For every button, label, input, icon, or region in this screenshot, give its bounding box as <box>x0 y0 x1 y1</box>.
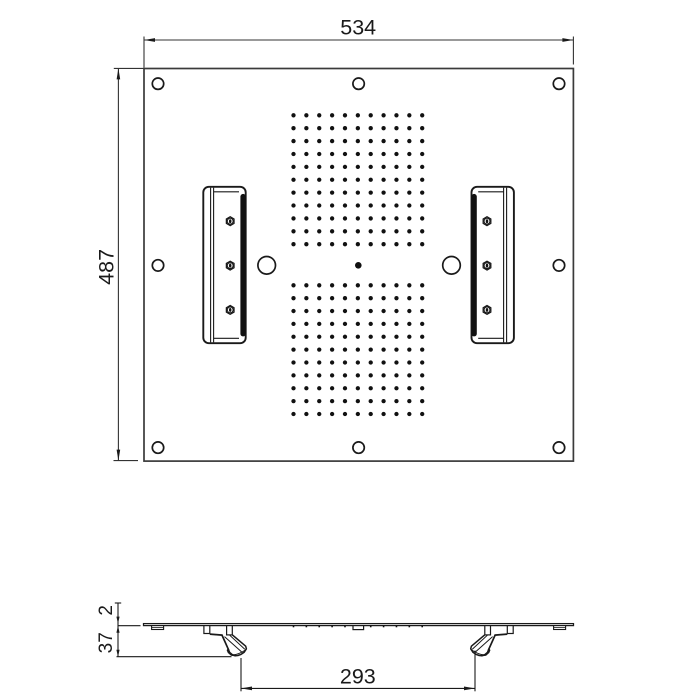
svg-text:487: 487 <box>94 249 118 285</box>
svg-text:37: 37 <box>96 632 117 653</box>
svg-text:293: 293 <box>340 665 376 689</box>
svg-text:2: 2 <box>96 605 117 616</box>
svg-text:534: 534 <box>340 16 376 40</box>
